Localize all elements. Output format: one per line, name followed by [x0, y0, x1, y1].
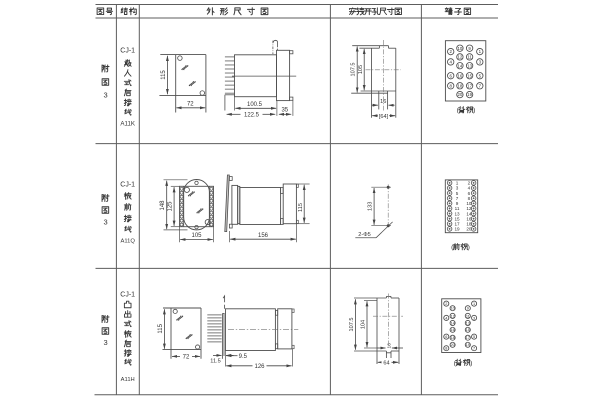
svg-text:10: 10	[457, 46, 462, 51]
svg-text:14: 14	[450, 321, 454, 325]
svg-text:A11H: A11H	[121, 377, 135, 383]
svg-text:19: 19	[467, 92, 472, 97]
svg-text:6: 6	[445, 335, 447, 339]
svg-text:CJ-1: CJ-1	[120, 182, 135, 189]
svg-text:11.5: 11.5	[210, 358, 220, 364]
svg-text:105: 105	[191, 233, 202, 239]
svg-text:20: 20	[457, 92, 462, 97]
svg-text:15: 15	[467, 73, 472, 78]
svg-text:13: 13	[466, 321, 470, 325]
svg-text:72: 72	[187, 101, 194, 107]
svg-text:122.5: 122.5	[244, 112, 260, 118]
svg-text:12: 12	[450, 314, 454, 318]
svg-text:14: 14	[457, 63, 462, 68]
svg-text:9: 9	[467, 307, 469, 311]
svg-text:9.5: 9.5	[239, 354, 248, 360]
svg-text:19: 19	[454, 227, 460, 232]
svg-text:3: 3	[104, 91, 108, 100]
svg-text:115: 115	[298, 203, 304, 212]
svg-text:125: 125	[168, 201, 174, 212]
svg-text:35: 35	[281, 108, 288, 114]
svg-text:8: 8	[445, 347, 447, 351]
svg-text:): )	[473, 107, 475, 114]
svg-text:10: 10	[450, 307, 454, 311]
svg-text:): )	[470, 360, 472, 367]
svg-text:11: 11	[467, 54, 472, 59]
svg-text:16: 16	[457, 73, 462, 78]
svg-text:4: 4	[445, 316, 447, 320]
svg-text:3: 3	[473, 316, 475, 320]
svg-text:107.5: 107.5	[349, 318, 355, 332]
svg-text:17: 17	[467, 83, 472, 88]
svg-text:[64]: [64]	[379, 114, 389, 120]
svg-text:115: 115	[161, 70, 167, 80]
svg-text:126: 126	[254, 364, 265, 370]
svg-text:11: 11	[466, 314, 470, 318]
svg-text:16: 16	[387, 343, 393, 349]
svg-text:18: 18	[457, 83, 462, 88]
svg-text:12: 12	[457, 54, 462, 59]
svg-text:A11Q: A11Q	[120, 239, 135, 245]
svg-text:CJ-1: CJ-1	[120, 292, 135, 299]
svg-text:20: 20	[450, 343, 454, 347]
svg-text:105: 105	[358, 65, 364, 74]
svg-text:107.5: 107.5	[351, 63, 357, 77]
svg-text:104: 104	[361, 320, 367, 329]
svg-text:72: 72	[183, 355, 190, 361]
svg-text:2: 2	[445, 302, 447, 306]
svg-text:CJ-1: CJ-1	[120, 47, 135, 54]
svg-text:148: 148	[160, 200, 166, 211]
svg-text:5: 5	[473, 335, 475, 339]
svg-text:A11K: A11K	[120, 121, 136, 128]
svg-text:17: 17	[466, 336, 470, 340]
svg-text:13: 13	[467, 63, 472, 68]
svg-text:156: 156	[258, 233, 269, 239]
svg-text:19: 19	[466, 343, 470, 347]
svg-text:1: 1	[473, 302, 475, 306]
svg-text:2-Φ5: 2-Φ5	[358, 232, 371, 238]
svg-text:16: 16	[380, 99, 386, 105]
svg-text:): )	[468, 244, 470, 251]
svg-text:20: 20	[466, 227, 472, 232]
svg-text:7: 7	[473, 347, 475, 351]
svg-text:64: 64	[383, 360, 389, 366]
svg-text:133: 133	[368, 202, 374, 211]
svg-text:18: 18	[450, 336, 454, 340]
svg-text:115: 115	[158, 323, 164, 333]
svg-text:100.5: 100.5	[247, 102, 263, 108]
svg-text:15: 15	[466, 328, 470, 332]
svg-text:16: 16	[450, 328, 454, 332]
svg-text:3: 3	[104, 338, 108, 347]
svg-text:3: 3	[104, 218, 108, 227]
